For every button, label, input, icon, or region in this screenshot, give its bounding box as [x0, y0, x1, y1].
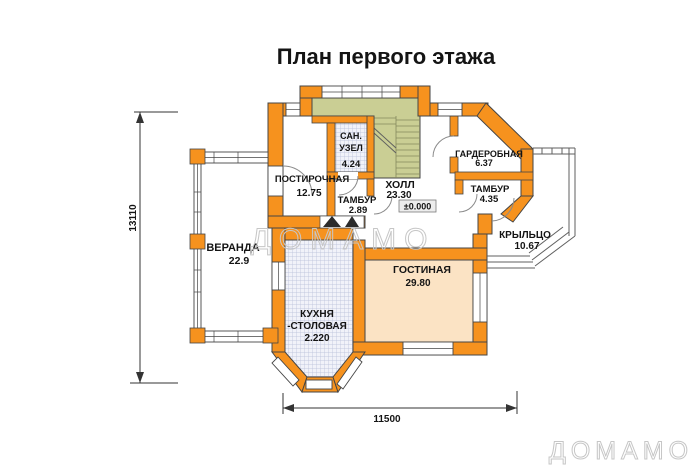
bathroom-right-wall [367, 116, 374, 172]
veranda-post-sw [190, 328, 205, 343]
dimension-left: 13110 [128, 112, 178, 383]
label-porch: КРЫЛЬЦО [499, 230, 551, 241]
label-bathroom-2: УЗЕЛ [339, 143, 363, 153]
dimension-bottom: 11500 [283, 391, 517, 425]
bathroom-top-wall [312, 116, 374, 123]
dimension-left-label: 13110 [128, 204, 139, 232]
tambur1-right-wall [367, 179, 374, 196]
top-wall-right-a [430, 103, 438, 116]
floor-plan-canvas: План первого этажа [0, 0, 700, 466]
wardrobe-bottom-wall [455, 172, 533, 180]
label-porch-area: 10.67 [514, 241, 539, 252]
label-hall-area: 23.30 [386, 190, 411, 201]
label-bathroom-area: 4.24 [342, 159, 361, 170]
veranda-post-w [190, 234, 205, 249]
veranda-post-se [263, 328, 278, 343]
label-kitchen-2: -СТОЛОВАЯ [287, 321, 347, 332]
bay-s-window [306, 380, 332, 389]
label-tambur2-area: 4.35 [480, 194, 499, 205]
label-bathroom-1: САН. [340, 131, 362, 141]
veranda-post-nw [190, 149, 205, 164]
label-kitchen-area: 2.220 [304, 333, 329, 344]
label-veranda-area: 22.9 [229, 255, 250, 267]
watermark-bottom-right: ДОМАМО [549, 437, 693, 465]
bay-top-left-wall [300, 86, 324, 98]
label-laundry: ПОСТИРОЧНАЯ [275, 174, 349, 185]
page-title: План первого этажа [277, 44, 496, 69]
label-wardrobe-area: 6.37 [475, 158, 493, 168]
main-left-wall [268, 103, 283, 216]
label-living-area: 29.80 [405, 278, 430, 289]
wardrobe-left-wall-b [450, 157, 458, 173]
label-living: ГОСТИНАЯ [393, 264, 451, 276]
dimension-bottom-label: 11500 [373, 414, 401, 425]
watermark-center: ДОМАМО [251, 223, 436, 256]
label-level-mark: ±0.000 [404, 202, 431, 212]
bay-right-wall [418, 86, 430, 116]
tambur2-left-wall [455, 180, 463, 194]
porch-corner-post [478, 214, 492, 234]
label-kitchen-1: КУХНЯ [300, 309, 334, 320]
bathroom-left-wall [327, 123, 335, 172]
label-laundry-area: 12.75 [296, 188, 321, 199]
wardrobe-left-wall-a [450, 116, 458, 136]
label-tambur1-area: 2.89 [349, 205, 368, 216]
